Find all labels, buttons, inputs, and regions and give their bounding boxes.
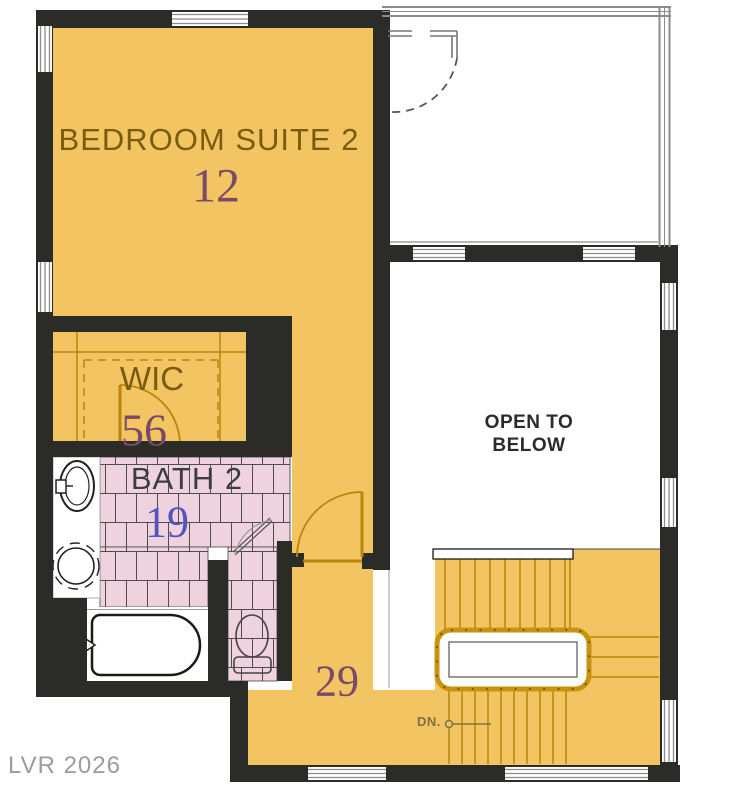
window — [172, 12, 248, 26]
floor-plan: BEDROOM SUITE 2 12 WIC 56 BATH 2 19 OPEN… — [0, 0, 733, 791]
window — [413, 247, 465, 260]
open-to-below-line2: BELOW — [485, 434, 574, 457]
window — [38, 26, 52, 72]
stairs-down-label: DN. — [417, 714, 441, 729]
wic-name-label: WIC — [120, 360, 184, 398]
floor-plan-drawing — [0, 0, 733, 791]
window — [662, 478, 676, 527]
open-to-below-label: OPEN TO BELOW — [485, 411, 574, 457]
bathtub-icon — [86, 607, 208, 681]
stair-railing — [437, 630, 589, 689]
window — [662, 700, 676, 762]
bedroom-name-label: BEDROOM SUITE 2 — [59, 122, 360, 158]
watermark-text: LVR 2026 — [8, 752, 121, 780]
wic-number-label: 56 — [121, 404, 167, 457]
window — [583, 247, 635, 260]
stair-hall-number-label: 29 — [315, 656, 359, 707]
water-closet-icon — [53, 543, 99, 589]
bedroom-number-label: 12 — [192, 159, 240, 214]
window — [38, 262, 52, 312]
window — [662, 283, 676, 330]
bath-number-label: 19 — [145, 497, 189, 548]
window — [505, 767, 648, 780]
window — [308, 767, 386, 780]
upper-room-area — [390, 18, 658, 242]
bath-name-label: BATH 2 — [131, 461, 243, 497]
open-to-below-line1: OPEN TO — [485, 411, 574, 434]
